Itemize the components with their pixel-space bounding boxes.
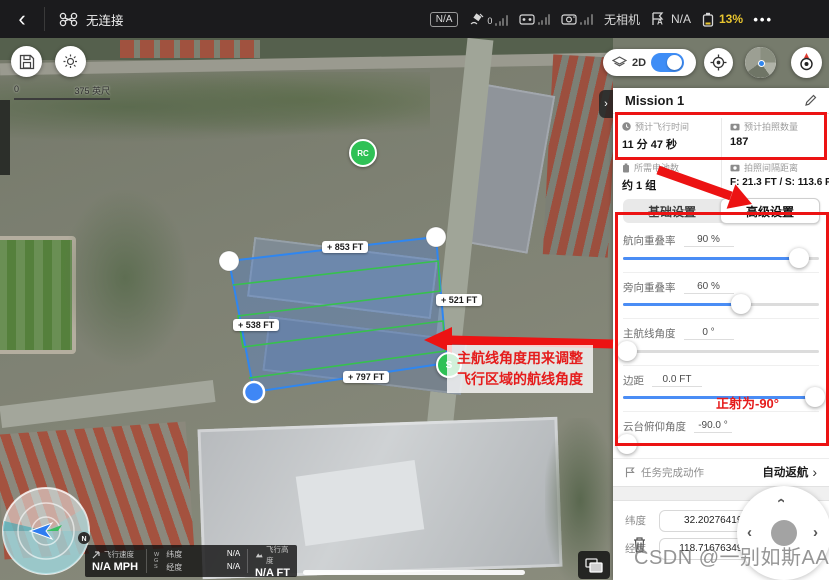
edge-distance-left: + 538 FT xyxy=(233,319,279,331)
mission-stats: 预计飞行时间 11 分 47 秒 预计拍照数量 187 所需电池数 约 1 组 xyxy=(613,114,829,196)
flight-mode-value: N/A xyxy=(671,12,691,26)
map-orientation-button[interactable] xyxy=(791,47,822,78)
stat-photo-interval: 拍照间隔距离 F: 21.3 FT / S: 113.6 FT xyxy=(721,155,829,196)
stat-flight-time: 预计飞行时间 11 分 47 秒 xyxy=(613,114,721,155)
map-2d-toggle[interactable] xyxy=(651,53,684,72)
compass-north-label: N xyxy=(81,536,86,543)
battery-percent: 13% xyxy=(719,12,743,26)
remote-controller-icon xyxy=(519,13,535,25)
speed-value: N/A MPH xyxy=(92,561,139,573)
vertex-handle xyxy=(426,227,446,247)
map-layers-icon xyxy=(585,558,603,573)
top-status-bar: ‹ 无连接 N/A 0 xyxy=(0,0,829,38)
heading-overlap-input[interactable]: 90 % xyxy=(684,234,734,247)
map-scale-bar: 0 375 英尺 xyxy=(14,84,110,100)
minimap-button[interactable] xyxy=(745,47,776,78)
map-layers-button[interactable] xyxy=(578,551,610,579)
camera-status: 无相机 xyxy=(604,11,640,28)
route-angle-input[interactable]: 0 ° xyxy=(684,327,734,340)
drone-icon xyxy=(59,12,78,27)
scale-line xyxy=(14,98,110,100)
back-button[interactable]: ‹ xyxy=(0,0,44,38)
slider-route-angle: 主航线角度 0 ° xyxy=(623,319,819,366)
battery-icon xyxy=(702,12,714,27)
nudge-left-icon[interactable]: ‹ xyxy=(747,524,752,541)
slider-gimbal-pitch: 云台俯仰角度 -90.0 ° xyxy=(623,412,819,458)
annotation-gimbal-note: 正射为-90° xyxy=(716,393,779,412)
battery-count-icon xyxy=(622,163,630,173)
compass-orientation-icon xyxy=(796,52,817,73)
settings-button[interactable] xyxy=(55,46,86,77)
tab-advanced-settings[interactable]: 高级设置 xyxy=(720,198,820,224)
slider-side-overlap: 旁向重叠率 60 % xyxy=(623,273,819,320)
scale-zero: 0 xyxy=(14,84,19,97)
svg-text:A: A xyxy=(657,18,663,27)
flight-mode-icon: A xyxy=(651,12,666,26)
finish-flag-icon xyxy=(625,467,636,478)
side-overlap-input[interactable]: 60 % xyxy=(684,281,734,294)
scale-total: 375 英尺 xyxy=(74,84,110,97)
panel-collapse-handle[interactable]: › xyxy=(599,90,613,118)
nudge-up-icon[interactable]: › xyxy=(772,498,789,503)
gear-icon xyxy=(62,53,79,70)
photo-icon xyxy=(730,123,740,131)
home-indicator[interactable] xyxy=(303,570,525,575)
gimbal-pitch-input[interactable]: -90.0 ° xyxy=(694,420,732,433)
camera-signal-bars xyxy=(580,14,593,25)
save-mission-button[interactable] xyxy=(11,46,42,77)
map-mode-pill: 2D xyxy=(603,49,696,76)
rc-signal-bars xyxy=(538,14,551,25)
edge-distance-right: + 521 FT xyxy=(436,294,482,306)
watermark: CSDN @一别如斯AA xyxy=(634,541,829,570)
connection-status: 无连接 xyxy=(86,10,124,29)
telemetry-lat-value: N/A xyxy=(227,549,240,560)
margin-input[interactable]: 0.0 FT xyxy=(652,374,702,387)
telemetry-bar: 飞行速度 N/A MPH WGS 纬度N/A 经度N/A 飞行高度 N/A FT xyxy=(85,545,297,577)
edit-pencil-icon[interactable] xyxy=(804,94,817,107)
altitude-icon xyxy=(255,551,263,559)
chevron-right-icon: › xyxy=(812,464,817,480)
nudge-right-icon[interactable]: › xyxy=(813,524,818,541)
tab-basic-settings[interactable]: 基础设置 xyxy=(623,199,721,223)
map-mode-label: 2D xyxy=(632,57,646,69)
rc-location-marker: RC xyxy=(349,139,377,167)
gps-satellite-icon xyxy=(469,13,484,26)
annotation-route-note: 主航线角度用来调整 飞行区域的航线角度 xyxy=(447,345,593,393)
telemetry-lon-value: N/A xyxy=(227,562,240,573)
more-options-button[interactable]: ••• xyxy=(753,0,773,38)
altitude-value: N/A FT xyxy=(255,567,290,579)
stat-photo-count: 预计拍照数量 187 xyxy=(721,114,829,155)
slider-heading-overlap: 航向重叠率 90 % xyxy=(623,226,819,273)
vertex-handle-selected xyxy=(244,382,264,402)
finish-action-value: 自动返航 xyxy=(762,464,808,480)
gps-signal-bars xyxy=(495,15,508,26)
clock-icon xyxy=(622,122,631,131)
mission-title: Mission 1 xyxy=(625,93,684,108)
interval-icon xyxy=(730,164,740,172)
camera-icon xyxy=(561,13,577,25)
na-badge: N/A xyxy=(430,12,459,27)
edge-distance-top: + 853 FT xyxy=(322,241,368,253)
edge-distance-bottom: + 797 FT xyxy=(343,371,389,383)
attitude-compass: N xyxy=(0,487,94,580)
advanced-settings-sliders: 航向重叠率 90 % 旁向重叠率 60 % 主航线角度 0 ° xyxy=(613,226,829,458)
route-angle-slider[interactable] xyxy=(623,350,819,353)
layers-icon xyxy=(612,56,627,69)
crosshair-icon xyxy=(710,54,727,71)
gimbal-pitch-slider[interactable] xyxy=(623,443,819,446)
stat-battery-count: 所需电池数 约 1 组 xyxy=(613,155,721,196)
vertex-handle xyxy=(219,251,239,271)
side-overlap-slider[interactable] xyxy=(623,303,819,306)
wgs-label: WGS xyxy=(154,547,162,575)
save-icon xyxy=(19,54,35,70)
minimap-thumbnail xyxy=(745,47,776,78)
settings-tabs: 基础设置 高级设置 xyxy=(613,196,829,226)
mission-panel: Mission 1 预计飞行时间 11 分 47 秒 预计拍照数量 187 xyxy=(613,88,829,580)
finish-action-row[interactable]: 任务完成动作 自动返航 › xyxy=(613,458,829,486)
app-screen: + 853 FT + 521 FT + 538 FT + 797 FT RC S… xyxy=(0,0,829,580)
locate-button[interactable] xyxy=(704,48,733,77)
gps-count: 0 xyxy=(487,16,492,26)
heading-overlap-slider[interactable] xyxy=(623,257,819,260)
